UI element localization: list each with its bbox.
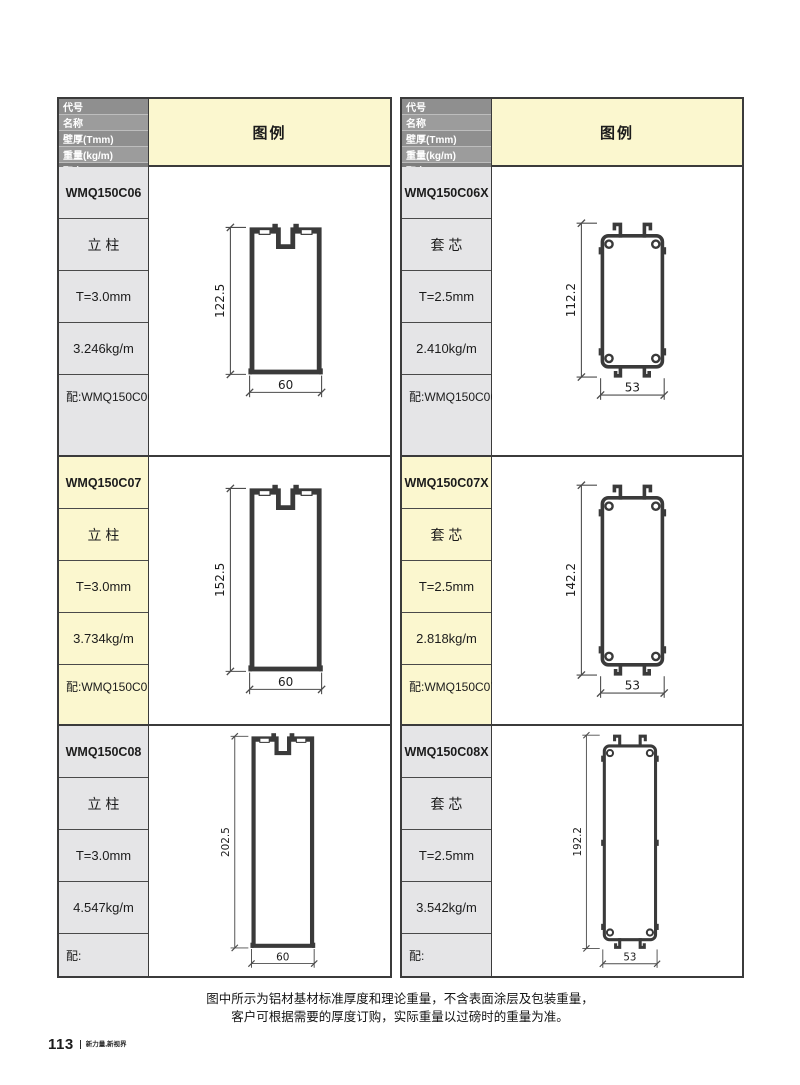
header-row-thickness: 壁厚(Tmm) (59, 131, 148, 147)
dim-width-label: 53 (625, 678, 640, 692)
profile-drawing-cell: 122.560 (149, 167, 390, 455)
profile-row: WMQ150C08X 套 芯 T=2.5mm 3.542kg/m 配: 192.… (402, 724, 742, 976)
profile-match: 配:WMQ150C07X (59, 665, 148, 724)
profile-drawing: 142.253 (561, 478, 673, 704)
profile-code: WMQ150C06X (402, 167, 491, 219)
profile-thickness: T=3.0mm (59, 830, 148, 882)
profile-drawing-cell: 202.560 (149, 726, 390, 976)
profile-code: WMQ150C06 (59, 167, 148, 219)
header-row-name: 名称 (59, 115, 148, 131)
header-row-thickness: 壁厚(Tmm) (402, 131, 491, 147)
profile-code: WMQ150C07X (402, 457, 491, 509)
dim-width-label: 60 (277, 675, 292, 689)
page-number: 113 (48, 1036, 74, 1053)
page-footer: 113 新力量,新视界 (48, 1036, 127, 1053)
brand-slogan: 新力量,新视界 (80, 1040, 127, 1049)
header-row-code: 代号 (402, 99, 491, 115)
dim-height-label: 122.5 (212, 284, 226, 318)
header-row-weight: 重量(kg/m) (59, 147, 148, 163)
profile-thickness: T=2.5mm (402, 271, 491, 323)
profile-weight: 2.410kg/m (402, 323, 491, 375)
profile-drawing-cell: 142.253 (492, 457, 742, 724)
header-block-left: 代号 名称 壁厚(Tmm) 重量(kg/m) 配套 图例 (59, 99, 390, 165)
dim-height-label: 202.5 (220, 827, 232, 857)
header-row-name: 名称 (402, 115, 491, 131)
dim-height-label: 112.2 (564, 283, 578, 317)
footer-note: 图中所示为铝材基材标准厚度和理论重量，不含表面涂层及包装重量， 客户可根据需要的… (0, 990, 800, 1026)
profile-row: WMQ150C06 立 柱 T=3.0mm 3.246kg/m 配:WMQ150… (59, 165, 390, 455)
dim-height-label: 142.2 (564, 563, 578, 597)
dim-width-label: 60 (277, 378, 292, 392)
header-row-weight: 重量(kg/m) (402, 147, 491, 163)
dim-width-label: 53 (625, 381, 640, 395)
profile-row: WMQ150C07 立 柱 T=3.0mm 3.734kg/m 配:WMQ150… (59, 455, 390, 724)
profile-weight: 3.734kg/m (59, 613, 148, 665)
spec-column: WMQ150C08 立 柱 T=3.0mm 4.547kg/m 配: (59, 726, 149, 976)
catalog-page: { "page": { "footer_note_line1": "图中所示为铝… (0, 0, 800, 1085)
profile-match: 配: (402, 934, 491, 976)
footer-note-line1: 图中所示为铝材基材标准厚度和理论重量，不含表面涂层及包装重量， (0, 990, 800, 1008)
dim-height-label: 152.5 (212, 563, 226, 597)
profile-code: WMQ150C08 (59, 726, 148, 778)
profile-table-left: 代号 名称 壁厚(Tmm) 重量(kg/m) 配套 图例 WMQ150C06 立… (57, 97, 392, 978)
profile-row: WMQ150C08 立 柱 T=3.0mm 4.547kg/m 配: 202.5… (59, 724, 390, 976)
dim-height-label: 192.2 (572, 827, 584, 856)
dim-width-label: 60 (276, 951, 289, 963)
profile-drawing: 112.253 (561, 216, 673, 406)
profile-name: 立 柱 (59, 509, 148, 561)
profile-match: 配:WMQ150C07 (402, 665, 491, 724)
profile-match: 配:WMQ150C06X (59, 375, 148, 455)
profile-drawing: 122.560 (210, 219, 330, 403)
header-labels-column: 代号 名称 壁厚(Tmm) 重量(kg/m) 配套 (402, 99, 492, 165)
profile-drawing-cell: 152.560 (149, 457, 390, 724)
profile-drawing: 192.253 (569, 729, 664, 973)
footer-note-line2: 客户可根据需要的厚度订购，实际重量以过磅时的重量为准。 (0, 1008, 800, 1026)
profile-name: 立 柱 (59, 219, 148, 271)
profile-name: 套 芯 (402, 509, 491, 561)
profile-weight: 3.246kg/m (59, 323, 148, 375)
spec-column: WMQ150C06X 套 芯 T=2.5mm 2.410kg/m 配:WMQ15… (402, 167, 492, 455)
dim-width-label: 53 (624, 952, 637, 964)
profile-thickness: T=3.0mm (59, 271, 148, 323)
profile-thickness: T=2.5mm (402, 561, 491, 613)
profile-code: WMQ150C07 (59, 457, 148, 509)
profile-thickness: T=3.0mm (59, 561, 148, 613)
profile-weight: 2.818kg/m (402, 613, 491, 665)
spec-column: WMQ150C08X 套 芯 T=2.5mm 3.542kg/m 配: (402, 726, 492, 976)
profile-drawing-cell: 192.253 (492, 726, 742, 976)
profile-drawing: 152.560 (210, 480, 330, 700)
profile-name: 套 芯 (402, 219, 491, 271)
header-labels-column: 代号 名称 壁厚(Tmm) 重量(kg/m) 配套 (59, 99, 149, 165)
profile-thickness: T=2.5mm (402, 830, 491, 882)
spec-column: WMQ150C07 立 柱 T=3.0mm 3.734kg/m 配:WMQ150… (59, 457, 149, 724)
header-block-right: 代号 名称 壁厚(Tmm) 重量(kg/m) 配套 图例 (402, 99, 742, 165)
profile-row: WMQ150C07X 套 芯 T=2.5mm 2.818kg/m 配:WMQ15… (402, 455, 742, 724)
profile-name: 套 芯 (402, 778, 491, 830)
profile-code: WMQ150C08X (402, 726, 491, 778)
profile-match: 配:WMQ150C06 (402, 375, 491, 455)
legend-header-cell: 图例 (492, 99, 742, 165)
profile-table-right: 代号 名称 壁厚(Tmm) 重量(kg/m) 配套 图例 WMQ150C06X … (400, 97, 744, 978)
spec-column: WMQ150C07X 套 芯 T=2.5mm 2.818kg/m 配:WMQ15… (402, 457, 492, 724)
legend-header-cell: 图例 (149, 99, 390, 165)
profile-catalog-table: 代号 名称 壁厚(Tmm) 重量(kg/m) 配套 图例 WMQ150C06 立… (57, 97, 744, 978)
header-row-code: 代号 (59, 99, 148, 115)
profile-drawing-cell: 112.253 (492, 167, 742, 455)
profile-weight: 4.547kg/m (59, 882, 148, 934)
profile-match: 配: (59, 934, 148, 976)
profile-drawing: 202.560 (217, 729, 321, 973)
profile-row: WMQ150C06X 套 芯 T=2.5mm 2.410kg/m 配:WMQ15… (402, 165, 742, 455)
profile-weight: 3.542kg/m (402, 882, 491, 934)
profile-name: 立 柱 (59, 778, 148, 830)
spec-column: WMQ150C06 立 柱 T=3.0mm 3.246kg/m 配:WMQ150… (59, 167, 149, 455)
